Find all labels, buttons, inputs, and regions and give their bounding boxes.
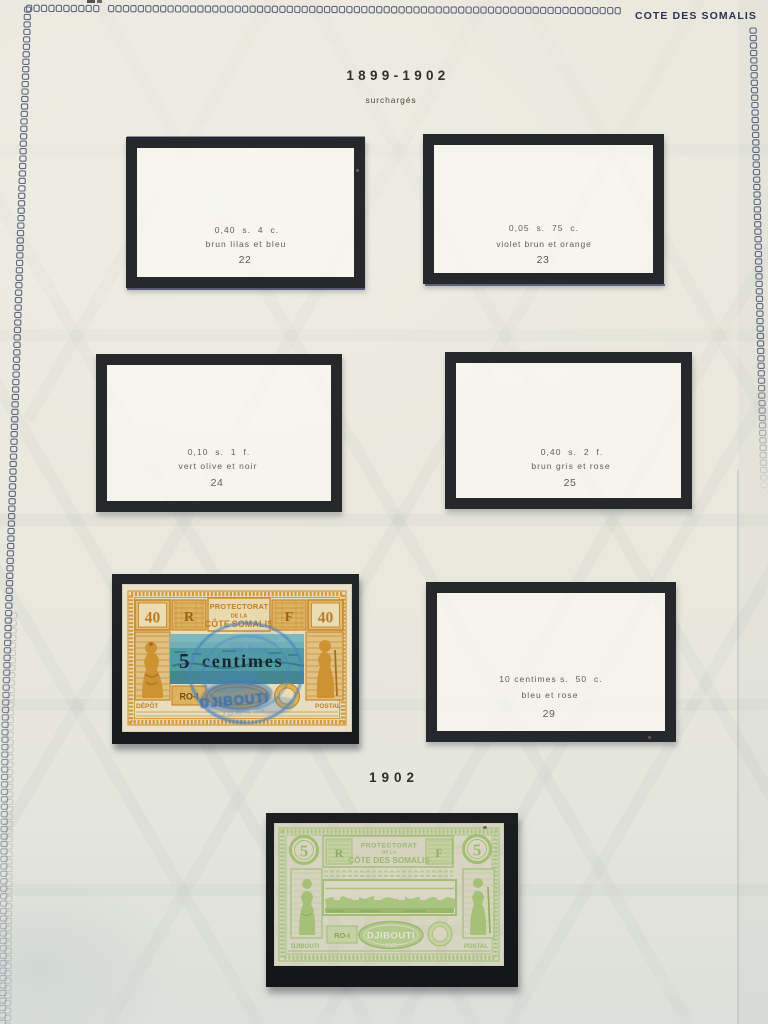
svg-text:PROTECTORAT: PROTECTORAT bbox=[210, 602, 269, 611]
svg-text:5: 5 bbox=[179, 649, 190, 673]
svg-text:F: F bbox=[285, 610, 294, 625]
svg-text:POSTAL: POSTAL bbox=[315, 703, 341, 710]
svg-text:40: 40 bbox=[145, 610, 161, 627]
svg-text:R: R bbox=[184, 610, 195, 625]
svg-text:DÉPÔT: DÉPÔT bbox=[136, 701, 158, 710]
svg-text:40: 40 bbox=[318, 610, 334, 627]
